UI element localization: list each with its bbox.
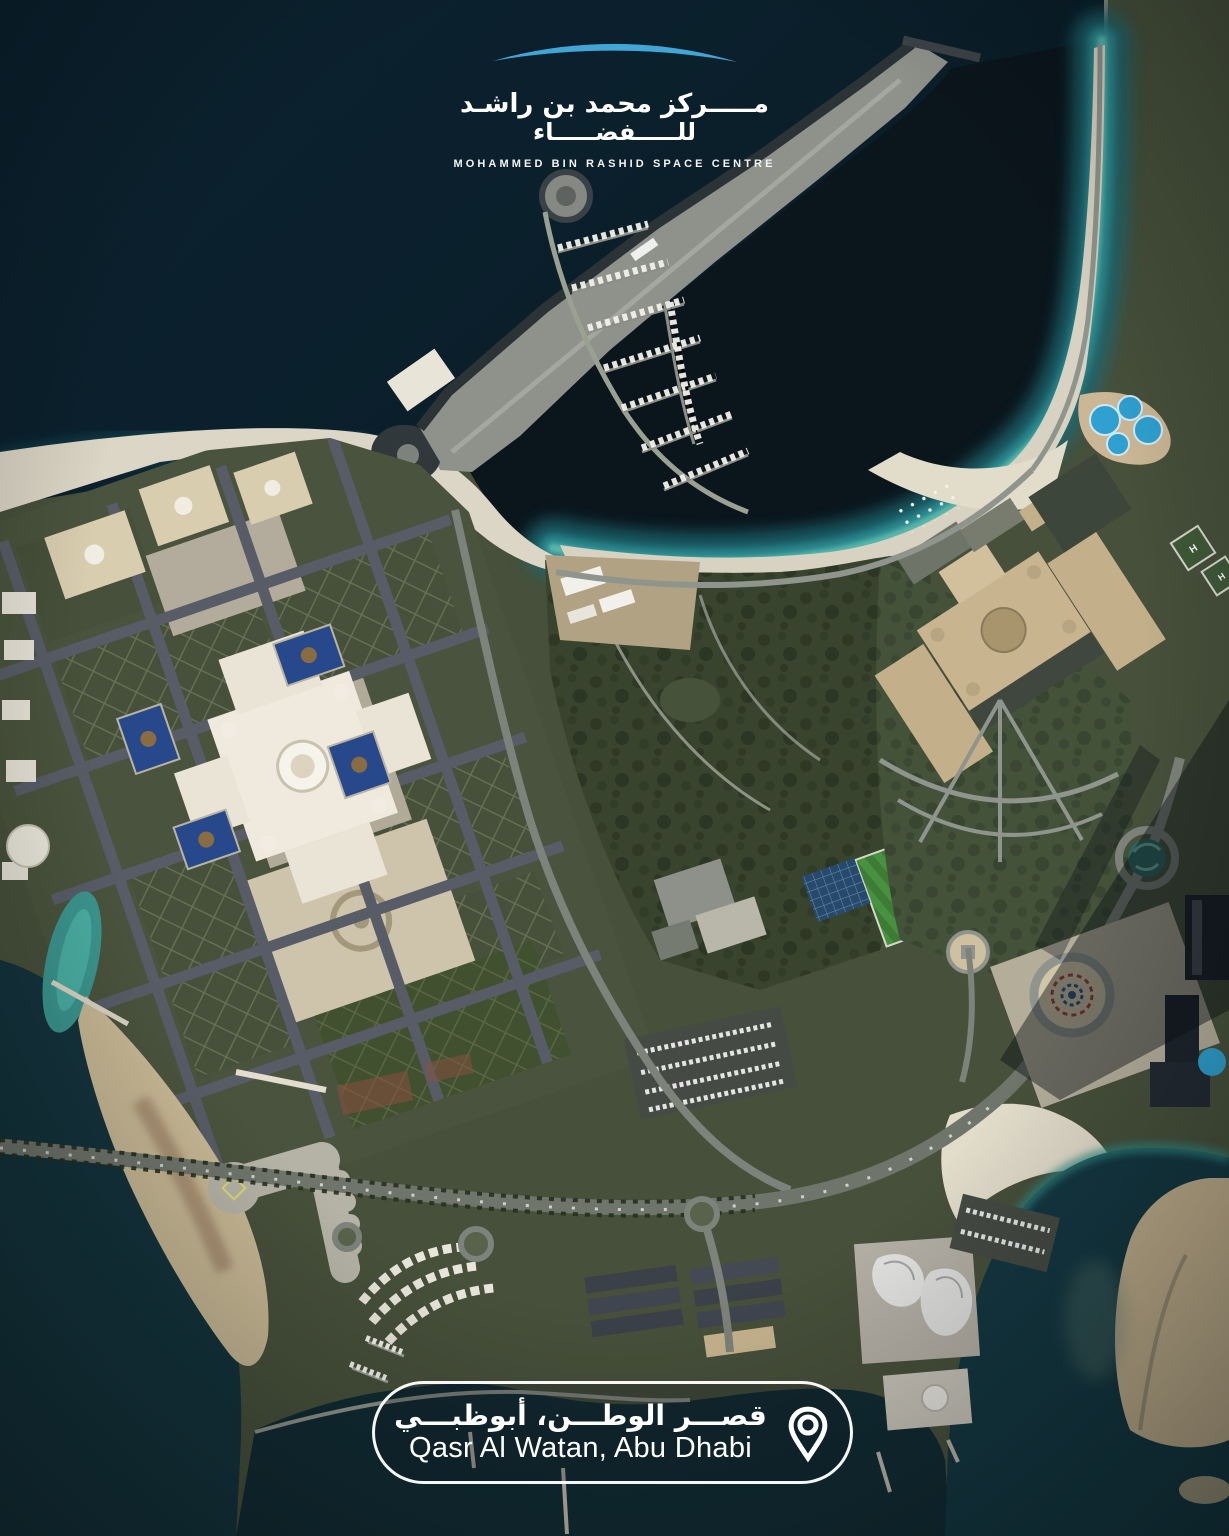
location-pin-icon <box>785 1404 831 1464</box>
location-badge: قصـــر الوطـــن، أبوظبـــي Qasr Al Watan… <box>372 1381 853 1484</box>
logo-arabic-line2: للـــــفضـــــاء <box>533 119 696 145</box>
logo-arabic-line1: مـــــركز محمد بن راشـد <box>460 90 769 119</box>
mbrsc-logo: مـــــركز محمد بن راشـد للـــــفضـــــاء… <box>445 34 785 170</box>
vignette <box>0 0 1229 1536</box>
location-arabic: قصـــر الوطـــن، أبوظبـــي <box>394 1401 767 1431</box>
satellite-poster: H H <box>0 0 1229 1536</box>
satellite-image: H H <box>0 0 1229 1536</box>
location-english: Qasr Al Watan, Abu Dhabi <box>409 1433 752 1464</box>
swoosh-path <box>493 44 737 62</box>
swoosh-arc-icon <box>492 34 738 64</box>
logo-english: MOHAMMED BIN RASHID SPACE CENTRE <box>453 158 775 170</box>
pin-hole <box>800 1416 816 1432</box>
location-text: قصـــر الوطـــن، أبوظبـــي Qasr Al Watan… <box>394 1401 767 1464</box>
